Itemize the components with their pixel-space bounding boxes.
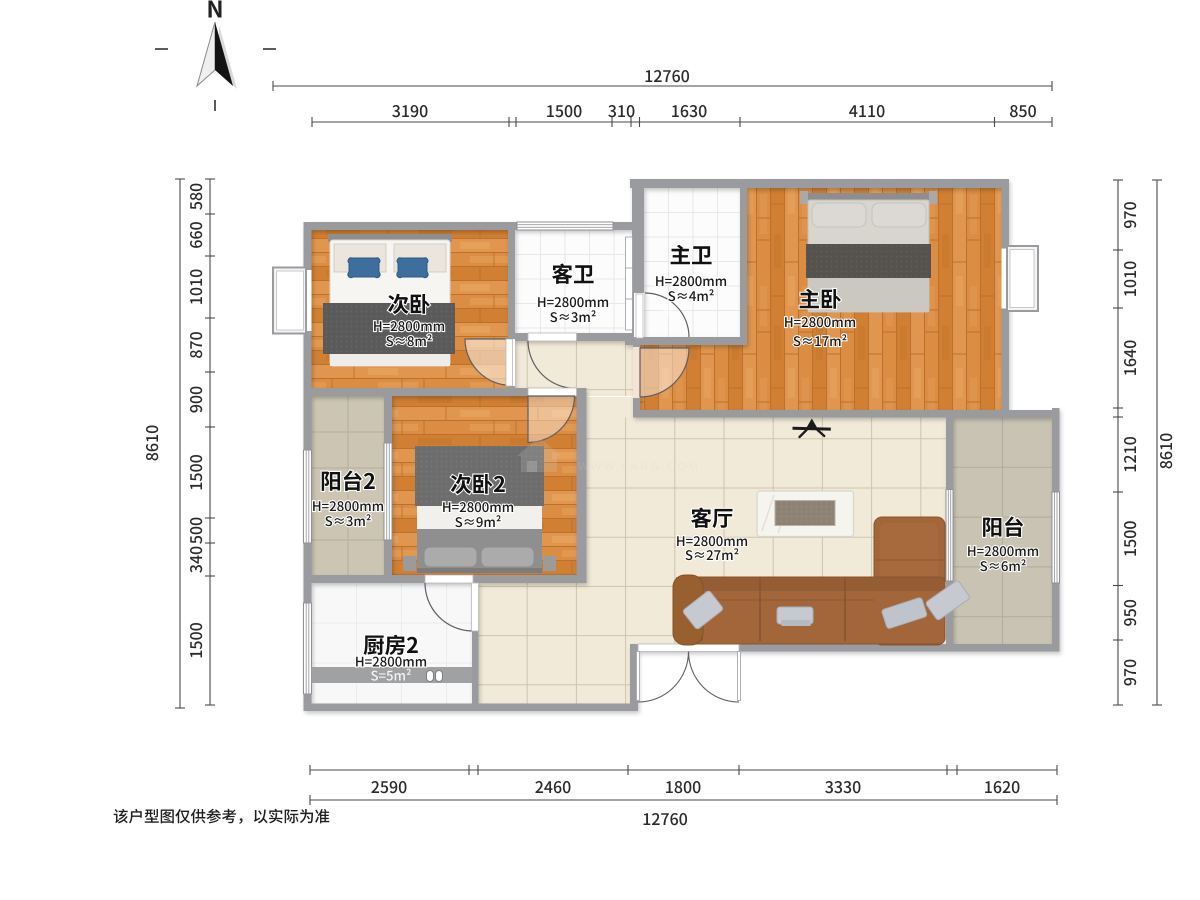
svg-text:WWW.FANG.COM: WWW.FANG.COM — [578, 461, 700, 473]
